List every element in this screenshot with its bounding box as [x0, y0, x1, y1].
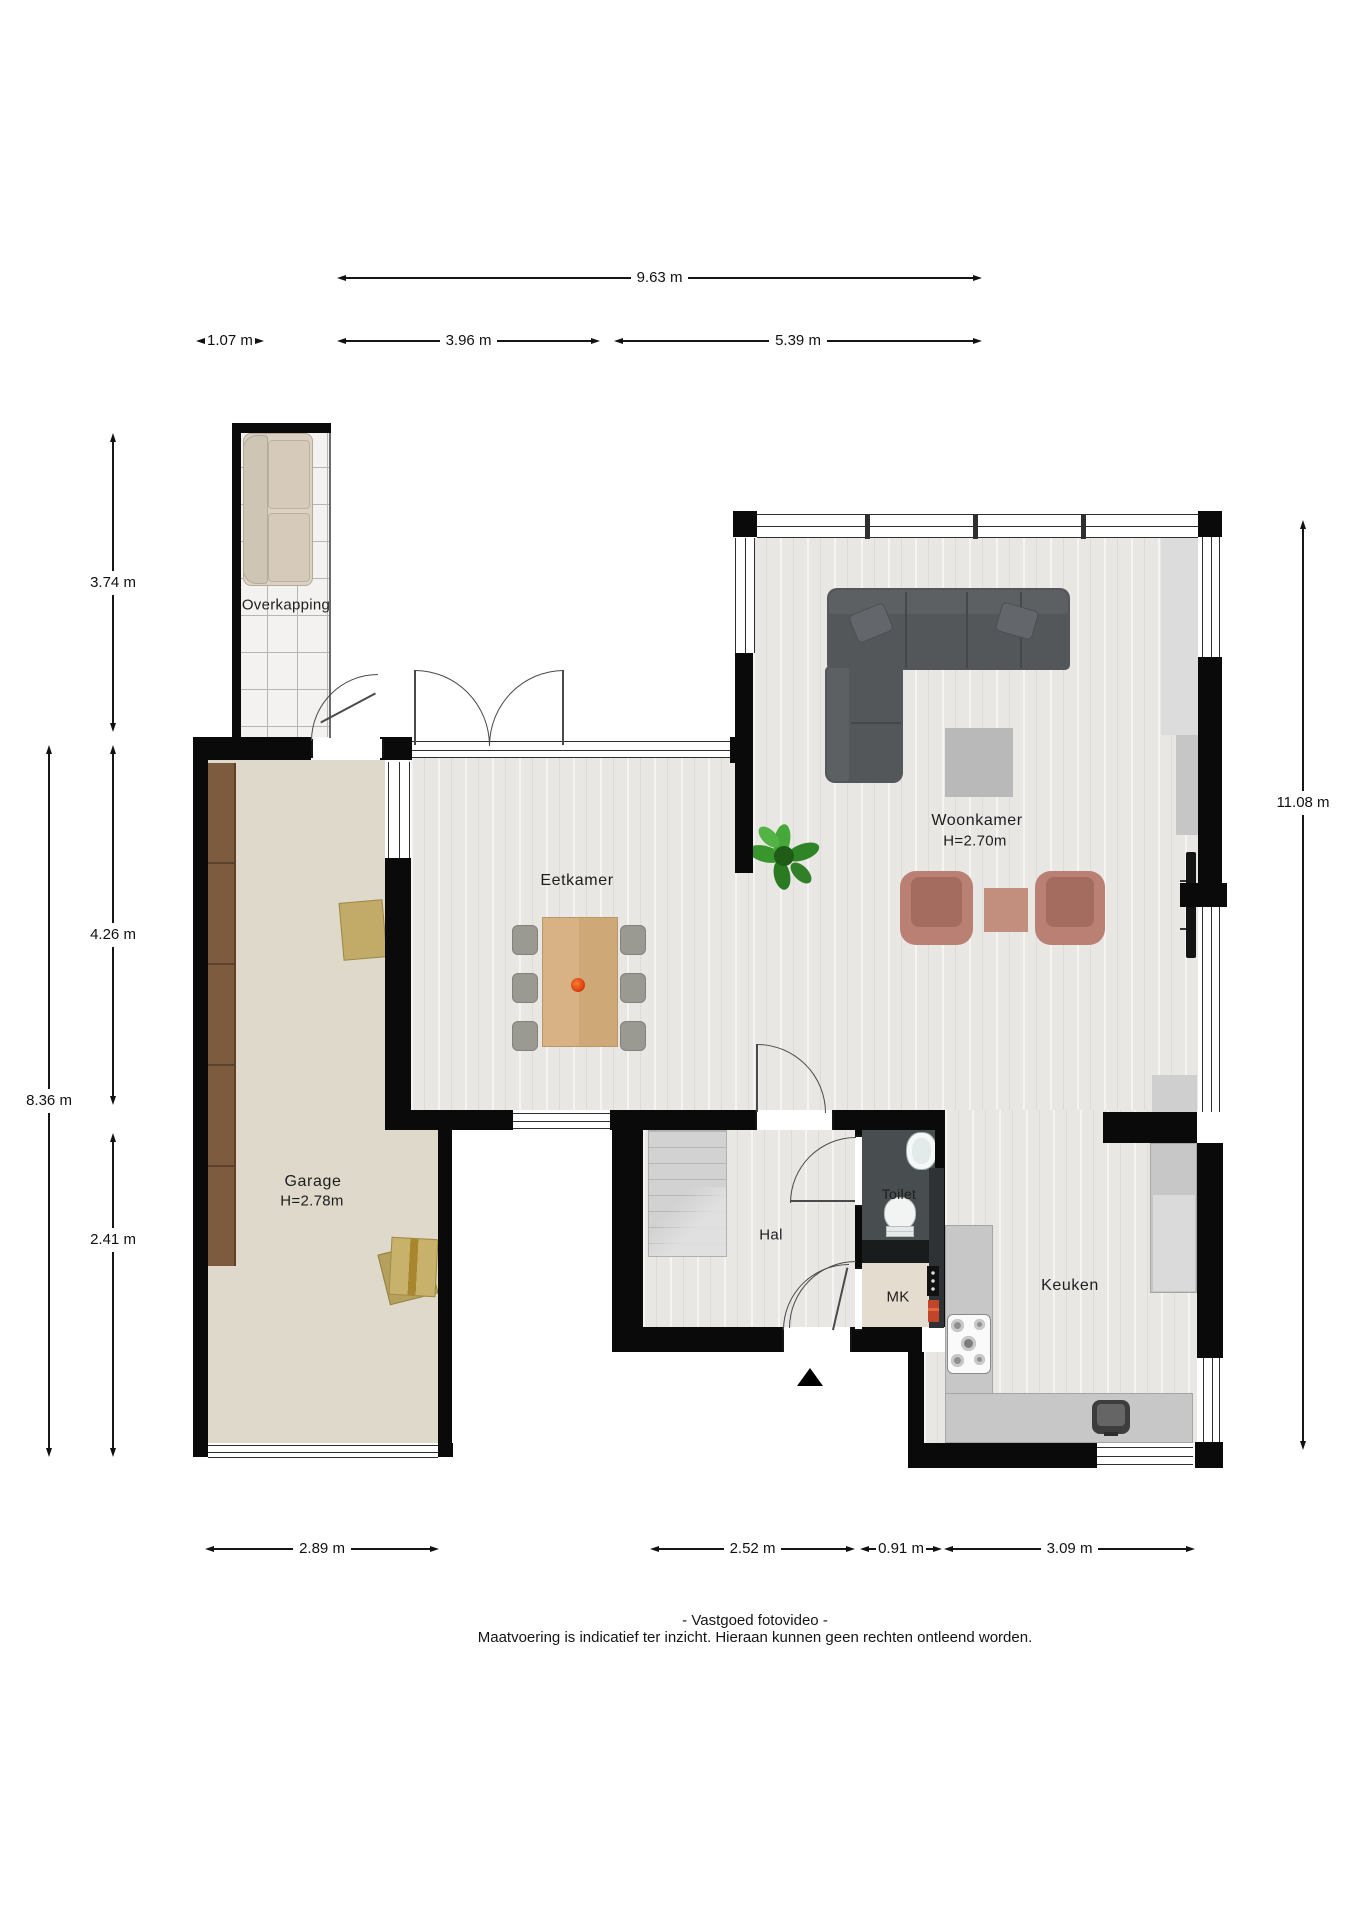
- toilet-door-opening: [855, 1135, 862, 1207]
- dining-chair: [620, 973, 646, 1003]
- window: [1203, 1358, 1220, 1442]
- wall-segment: [385, 1110, 513, 1130]
- window-mullion: [1081, 514, 1086, 539]
- dimension-top-total: 9.63 m: [337, 270, 982, 286]
- hob-burner-center: [961, 1336, 976, 1351]
- room-label-woonkamer: Woonkamer: [931, 812, 1022, 830]
- hob-burner: [974, 1354, 985, 1365]
- door-leaf: [562, 670, 564, 745]
- window: [735, 538, 755, 653]
- garage-box: [389, 1237, 439, 1297]
- wall-segment: [612, 1110, 643, 1352]
- room-label-mk: MK: [886, 1289, 909, 1306]
- kitchen-counter-right-inset: [1153, 1195, 1195, 1291]
- dimension-left-upper: 3.74 m: [105, 433, 121, 732]
- loveseat-cushion: [268, 513, 310, 582]
- window-mullion: [865, 514, 870, 539]
- floorplan-canvas: Overkapping Eetkamer Woonkamer H=2.70m G…: [0, 0, 1358, 1920]
- wall-segment: [232, 423, 241, 737]
- window: [388, 762, 410, 858]
- fireplace-niche: [1176, 735, 1198, 835]
- dining-chair: [512, 1021, 538, 1051]
- dimension-bottom-garage: 2.89 m: [205, 1541, 439, 1557]
- fire-extinguisher: [928, 1300, 939, 1322]
- wall-segment: [908, 1443, 1097, 1468]
- tv-bracket: [1180, 880, 1186, 882]
- window: [1202, 907, 1220, 1112]
- footer-line2: Maatvoering is indicatief ter inzicht. H…: [370, 1629, 1140, 1646]
- kitchen-counter-bottom: [945, 1393, 1193, 1443]
- table-flower: [571, 978, 585, 992]
- passage-floor: [735, 873, 753, 1110]
- dining-chair: [512, 973, 538, 1003]
- window: [563, 741, 730, 758]
- entrance-arrow-icon: [797, 1368, 823, 1386]
- window: [757, 514, 1198, 538]
- wall-segment: [385, 858, 411, 1110]
- wall-segment: [438, 1443, 453, 1457]
- coffee-table: [984, 888, 1028, 932]
- door-leaf: [756, 1044, 758, 1112]
- room-label-overkapping: Overkapping: [242, 597, 330, 614]
- armchair-right: [1035, 871, 1105, 945]
- wall-segment: [232, 423, 331, 433]
- wall-segment: [862, 1240, 937, 1263]
- wall-segment: [612, 1327, 782, 1352]
- plant: [746, 822, 822, 894]
- sofa-armrest: [827, 668, 849, 781]
- garage-door: [208, 1445, 438, 1458]
- wall-segment: [193, 760, 208, 1457]
- dimension-top-left: 1.07 m: [196, 333, 253, 349]
- armchair-left: [900, 871, 973, 945]
- mk-electric-panel: [927, 1266, 939, 1296]
- wall-cabinet-panel: [1161, 537, 1198, 735]
- kitchen-sink-basin: [1097, 1404, 1125, 1426]
- door-leaf: [414, 670, 416, 745]
- footer-line1: - Vastgoed fotovideo -: [370, 1612, 1140, 1629]
- side-table: [945, 728, 1013, 797]
- wall-segment: [735, 653, 753, 873]
- hob-burner: [974, 1319, 985, 1330]
- kitchen-upper-cabinet: [1152, 1075, 1197, 1112]
- hob-burner: [951, 1319, 964, 1332]
- sofa-seam: [905, 592, 907, 668]
- dimension-left-total: 8.36 m: [41, 745, 57, 1457]
- armchair-seat: [911, 877, 962, 927]
- wall-segment: [733, 511, 757, 537]
- hob-burner: [951, 1354, 964, 1367]
- dimension-right-total: 11.08 m: [1295, 520, 1311, 1450]
- wall-segment: [610, 1110, 755, 1130]
- dimension-bottom-keuken: 3.09 m: [944, 1541, 1195, 1557]
- dimension-top-mid: 3.96 m: [337, 333, 600, 349]
- dining-chair: [620, 925, 646, 955]
- window: [1202, 537, 1220, 657]
- tv-bracket: [1180, 928, 1186, 930]
- wall-segment: [380, 737, 412, 760]
- kitchen-faucet: [1104, 1432, 1118, 1436]
- keuken-floor-left: [924, 1352, 945, 1443]
- loveseat-backrest: [243, 435, 268, 584]
- wall-segment: [438, 1130, 452, 1443]
- dimension-left-lower: 2.41 m: [105, 1133, 121, 1457]
- sofa-seam: [966, 592, 968, 668]
- door-swing-arc: [415, 670, 490, 746]
- room-height-woonkamer: H=2.70m: [943, 833, 1006, 850]
- staircase: [648, 1130, 727, 1257]
- armchair-seat: [1046, 877, 1094, 927]
- toilet-sink-basin: [912, 1138, 931, 1164]
- window: [513, 1113, 610, 1129]
- dimension-bottom-mk: 0.91 m: [860, 1541, 942, 1557]
- loveseat-cushion: [268, 440, 310, 509]
- room-height-garage: H=2.78m: [280, 1193, 343, 1210]
- door-opening: [311, 739, 384, 758]
- wall-segment: [1103, 1112, 1197, 1143]
- hal-door-opening: [755, 1110, 834, 1130]
- garage-workbench: [339, 899, 388, 961]
- room-label-garage: Garage: [285, 1173, 342, 1191]
- room-label-keuken: Keuken: [1041, 1277, 1099, 1295]
- garage-cabinet: [208, 763, 236, 1266]
- wall-segment: [855, 1203, 862, 1267]
- room-label-eetkamer: Eetkamer: [540, 872, 613, 890]
- dimension-bottom-hal: 2.52 m: [650, 1541, 855, 1557]
- wall-segment: [1197, 1143, 1223, 1358]
- wall-segment: [193, 737, 311, 760]
- window: [1097, 1447, 1193, 1465]
- plant-center: [774, 846, 794, 866]
- wall-segment: [830, 1110, 945, 1130]
- footer-disclaimer: - Vastgoed fotovideo - Maatvoering is in…: [370, 1612, 1140, 1646]
- plant-leaf: [787, 859, 815, 887]
- dining-chair: [620, 1021, 646, 1051]
- room-label-hal: Hal: [759, 1227, 782, 1244]
- dining-chair: [512, 925, 538, 955]
- dimension-left-mid: 4.26 m: [105, 745, 121, 1105]
- wall-segment: [908, 1352, 924, 1443]
- door-swing-arc: [489, 670, 564, 746]
- sofa-seam: [851, 722, 901, 724]
- dimension-top-right: 5.39 m: [614, 333, 982, 349]
- mk-door-opening: [855, 1267, 862, 1331]
- door-leaf: [790, 1200, 855, 1202]
- window-mullion: [973, 514, 978, 539]
- front-door-opening: [782, 1327, 852, 1352]
- wall-segment: [1180, 883, 1227, 907]
- wall-segment: [1195, 1442, 1223, 1468]
- wall-segment: [1198, 657, 1222, 883]
- wall-segment: [1198, 511, 1222, 537]
- toilet-base: [886, 1226, 914, 1237]
- room-label-toilet: Toilet: [882, 1186, 916, 1202]
